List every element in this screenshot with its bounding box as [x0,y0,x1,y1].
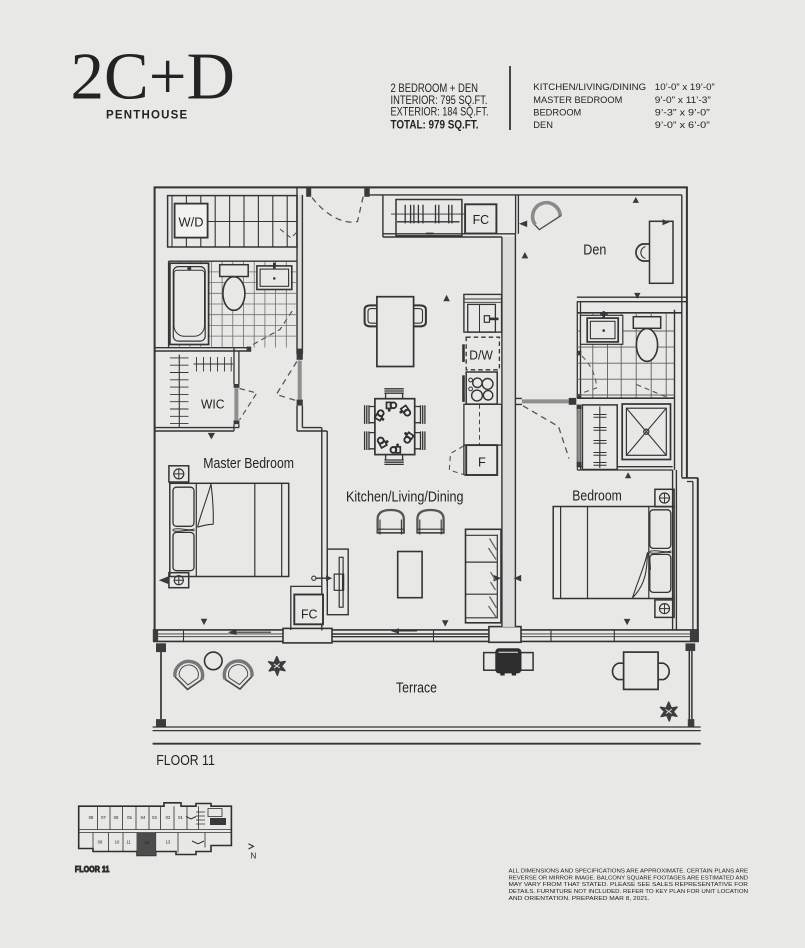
svg-text:11: 11 [126,840,131,845]
svg-text:04: 04 [141,815,146,820]
svg-text:PENTHOUSE: PENTHOUSE [106,109,188,121]
svg-text:08: 08 [89,815,94,820]
svg-text:FLOOR 11: FLOOR 11 [75,864,110,874]
svg-text:N: N [251,852,257,861]
svg-text:09: 09 [98,840,103,845]
svg-text:10’-0” x 19’-0”: 10’-0” x 19’-0” [655,82,715,92]
svg-text:REVERSE OR MIRROR IMAGE. BALCO: REVERSE OR MIRROR IMAGE. BALCONY SQUARE … [509,875,749,881]
svg-text:06: 06 [114,815,119,820]
svg-text:MASTER BEDROOM: MASTER BEDROOM [533,95,622,105]
svg-text:MAY VARY FROM THAT STATED.: MAY VARY FROM THAT STATED. PLEASE SEE SA… [509,882,749,888]
svg-text:12: 12 [144,840,149,845]
svg-text:DETAILS. FURNITURE NOT INCLUDE: DETAILS. FURNITURE NOT INCLUDED. REFER T… [509,889,749,895]
svg-text:AND ORIENTATION. PREPARED MAR: AND ORIENTATION. PREPARED MAR 8, 2021. [509,896,651,902]
svg-text:13: 13 [166,840,171,845]
svg-text:10: 10 [115,840,120,845]
svg-text:W/D: W/D [179,214,204,229]
svg-text:Bedroom: Bedroom [572,488,622,505]
svg-text:BEDROOM: BEDROOM [533,107,581,117]
svg-text:Master Bedroom: Master Bedroom [203,455,294,472]
svg-text:05: 05 [127,815,132,820]
svg-text:9’-0” x 11’-3”: 9’-0” x 11’-3” [655,95,711,105]
svg-text:Den: Den [583,242,606,259]
svg-text:TOTAL: 979 SQ.FT.: TOTAL: 979 SQ.FT. [391,118,479,131]
svg-text:F: F [478,454,486,469]
svg-text:FC: FC [301,607,318,622]
svg-text:D/W: D/W [469,348,493,363]
svg-text:EXTERIOR: 184 SQ.FT.: EXTERIOR: 184 SQ.FT. [391,106,489,119]
svg-text:01: 01 [178,815,183,820]
svg-text:9’-0” x 6’-0”: 9’-0” x 6’-0” [655,120,710,130]
svg-text:ALL DIMENSIONS AND SPECIFICATI: ALL DIMENSIONS AND SPECIFICATIONS ARE AP… [509,868,749,874]
svg-text:WIC: WIC [201,396,225,411]
svg-text:02: 02 [166,815,171,820]
svg-text:KITCHEN/LIVING/DINING: KITCHEN/LIVING/DINING [533,82,646,92]
svg-text:Terrace: Terrace [396,679,437,696]
svg-text:9’-3” x 9’-0”: 9’-3” x 9’-0” [655,107,710,117]
svg-text:Kitchen/Living/Dining: Kitchen/Living/Dining [346,488,464,505]
svg-text:2C+D: 2C+D [71,40,235,114]
svg-text:FLOOR 11: FLOOR 11 [156,752,215,769]
svg-text:FC: FC [473,212,490,227]
svg-text:03: 03 [152,815,157,820]
svg-text:DEN: DEN [533,120,553,130]
svg-text:07: 07 [101,815,106,820]
